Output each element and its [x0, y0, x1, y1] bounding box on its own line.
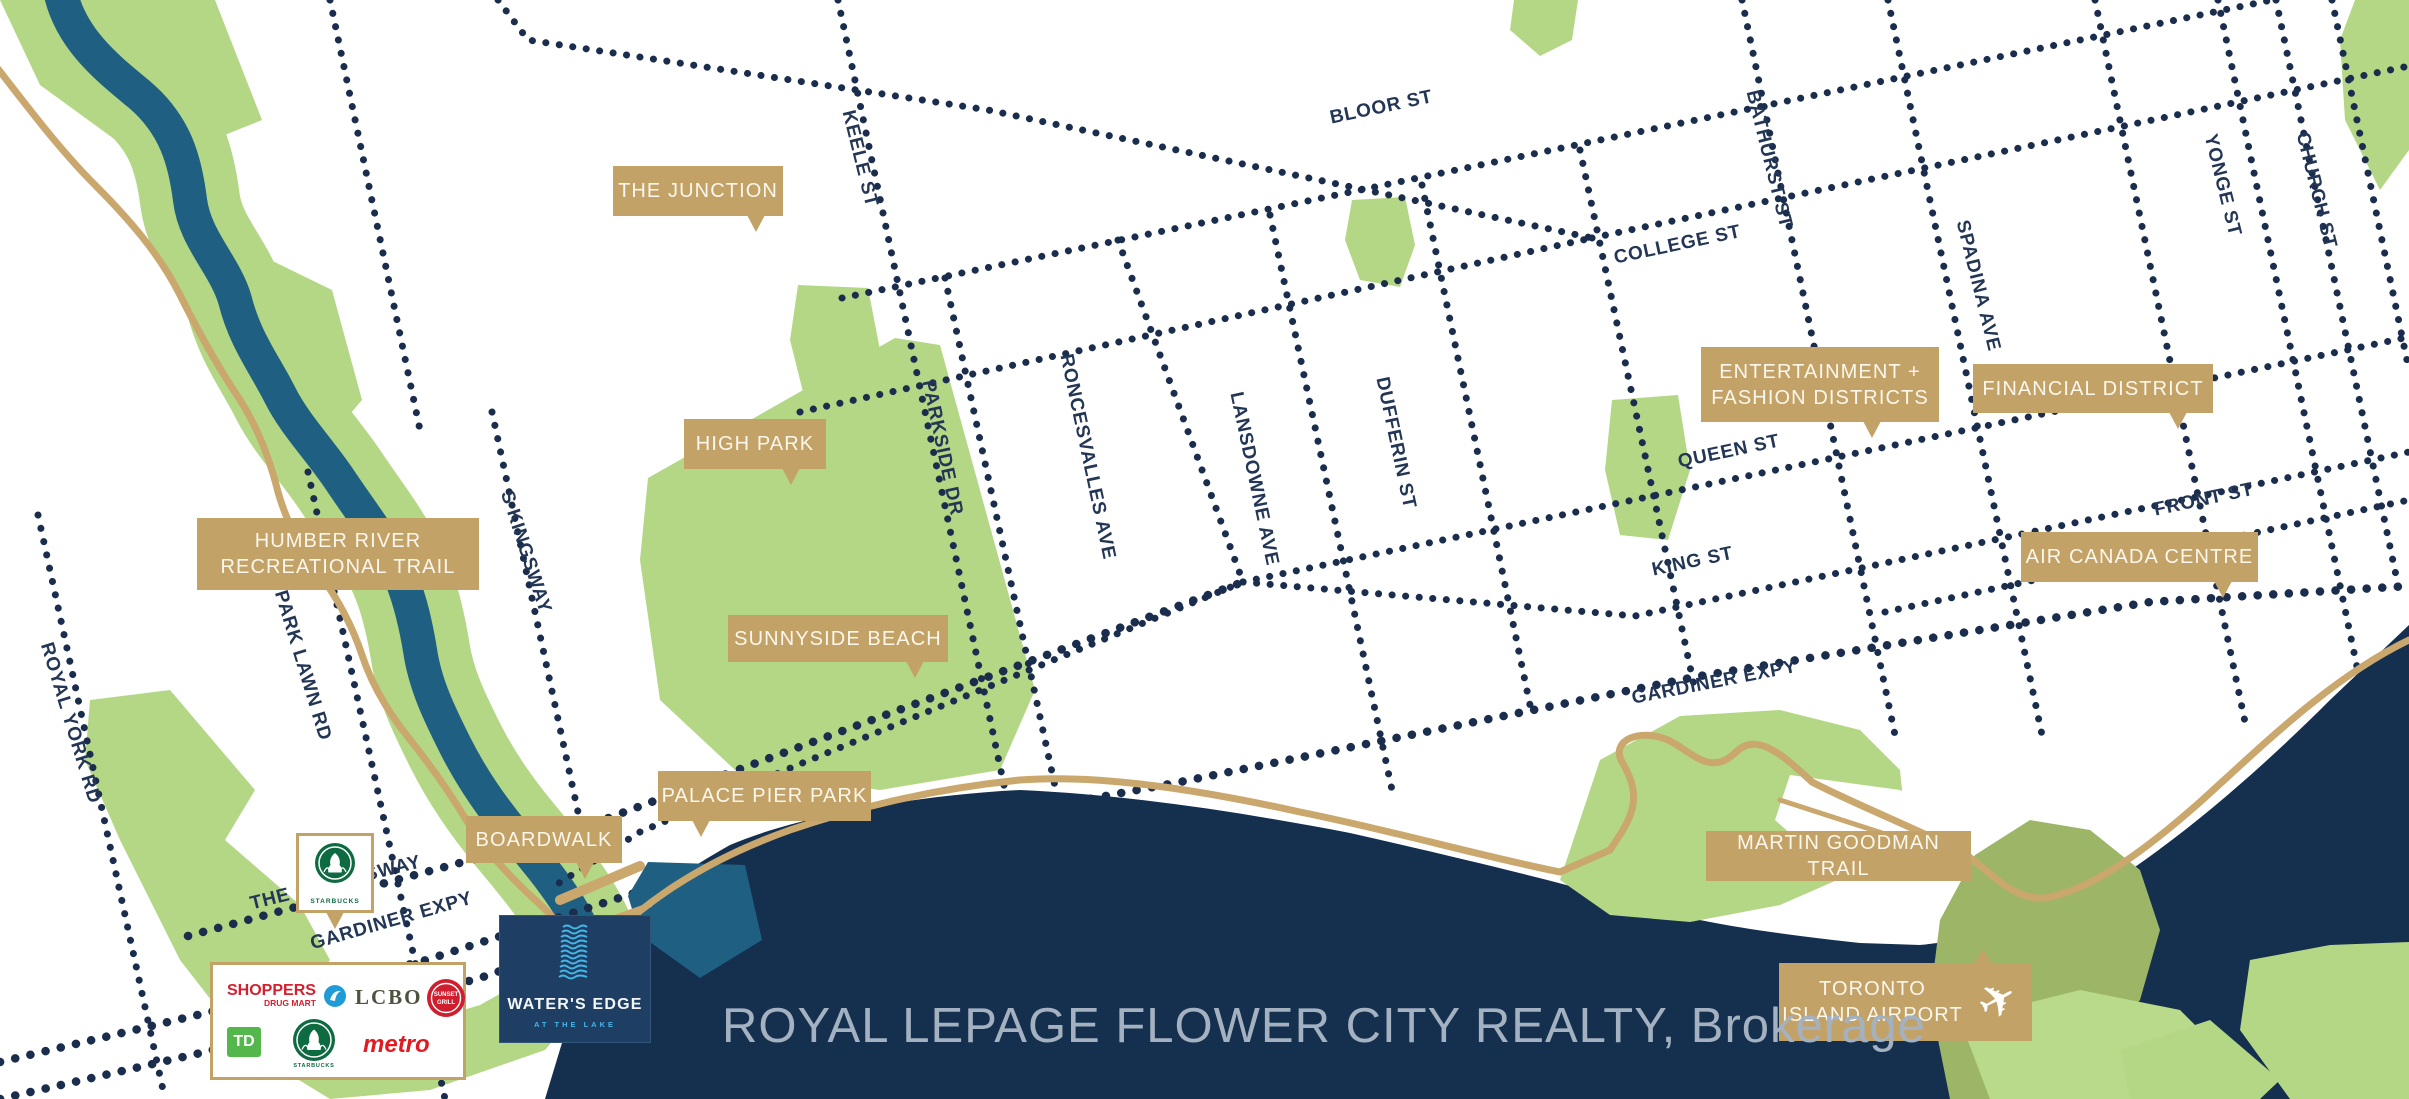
shoppers-logo-text: SHOPPERS [227, 983, 316, 999]
shoppers-drug-mart-logo: SHOPPERS DRUG MART [227, 983, 316, 1008]
waters-edge-wave-tower-icon [557, 924, 593, 982]
callout-entertainment-fashion-label: ENTERTAINMENT + FASHION DISTRICTS [1711, 359, 1929, 411]
callout-sunnyside-beach: SUNNYSIDE BEACH [728, 615, 948, 662]
callout-entertainment-fashion: ENTERTAINMENT + FASHION DISTRICTS [1701, 347, 1939, 422]
starbucks-logo-label: STARBUCKS [291, 1063, 337, 1069]
callout-palace-pier-park-label: PALACE PIER PARK [662, 783, 868, 809]
shoppers-circle-icon [323, 984, 347, 1008]
marker-pointer-icon [326, 912, 344, 929]
map-stage: KEELE ST BLOOR ST BATHURST ST COLLEGE ST… [0, 0, 2409, 1099]
waters-edge-name: WATER'S EDGE [500, 996, 650, 1014]
callout-high-park: HIGH PARK [684, 419, 826, 469]
td-bank-logo: TD [227, 1027, 261, 1057]
waters-edge-marker: WATER'S EDGE AT THE LAKE [499, 915, 651, 1043]
callout-pointer-icon [782, 468, 800, 485]
callout-martin-goodman-trail: MARTIN GOODMAN TRAIL [1706, 831, 1971, 881]
waters-edge-tagline: AT THE LAKE [500, 1020, 650, 1029]
starbucks-logo-icon [313, 841, 357, 885]
callout-high-park-label: HIGH PARK [696, 431, 814, 457]
callout-air-canada-centre-label: AIR CANADA CENTRE [2026, 544, 2254, 570]
callout-financial-district: FINANCIAL DISTRICT [1973, 364, 2213, 413]
svg-text:SUNSET: SUNSET [434, 992, 459, 998]
callout-the-junction: THE JUNCTION [613, 166, 783, 216]
callout-the-junction-label: THE JUNCTION [618, 178, 778, 204]
retail-plaza-box: SHOPPERS DRUG MART LCBO SUNSET GRILL TD … [210, 962, 466, 1080]
starbucks-logo-icon [291, 1017, 337, 1063]
callout-boardwalk: BOARDWALK [466, 816, 622, 863]
callout-pointer-icon [2214, 581, 2232, 598]
callout-pointer-icon [576, 862, 594, 879]
callout-humber-river-trail: HUMBER RIVER RECREATIONAL TRAIL [197, 518, 479, 590]
callout-palace-pier-park: PALACE PIER PARK [658, 771, 871, 821]
starbucks-marker: STARBUCKS [296, 833, 374, 913]
svg-text:GRILL: GRILL [437, 1000, 455, 1006]
callout-pointer-icon [692, 820, 710, 837]
metro-logo: metro [363, 1031, 430, 1059]
brokerage-text: ROYAL LEPAGE FLOWER CITY REALTY, Brokera… [722, 998, 1926, 1054]
callout-boardwalk-label: BOARDWALK [476, 827, 613, 853]
sunset-grill-logo: SUNSET GRILL [425, 977, 467, 1019]
callout-pointer-icon [1974, 949, 1992, 964]
shoppers-logo-subtext: DRUG MART [227, 999, 316, 1008]
lcbo-logo: LCBO [355, 985, 423, 1010]
callout-pointer-icon [906, 661, 924, 678]
callout-sunnyside-beach-label: SUNNYSIDE BEACH [734, 626, 942, 652]
td-logo-text: TD [233, 1033, 254, 1051]
starbucks-marker-label: STARBUCKS [299, 898, 371, 905]
callout-pointer-icon [1863, 421, 1881, 438]
callout-air-canada-centre: AIR CANADA CENTRE [2021, 532, 2258, 582]
callout-martin-goodman-trail-label: MARTIN GOODMAN TRAIL [1706, 830, 1971, 882]
callout-pointer-icon [2169, 412, 2187, 429]
callout-financial-district-label: FINANCIAL DISTRICT [1982, 376, 2203, 402]
callout-pointer-icon [747, 215, 765, 232]
callout-humber-river-trail-label: HUMBER RIVER RECREATIONAL TRAIL [220, 528, 455, 580]
airplane-icon: ✈ [1970, 970, 2027, 1029]
